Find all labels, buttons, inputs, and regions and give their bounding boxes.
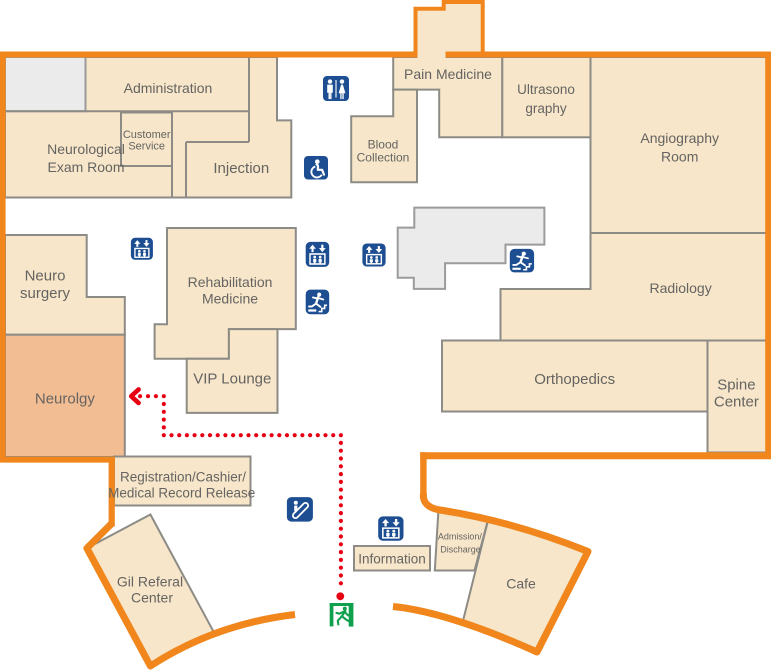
svg-text:Exam Room: Exam Room: [47, 159, 124, 175]
svg-text:Rehabilitation: Rehabilitation: [188, 274, 273, 290]
svg-text:Discharge: Discharge: [440, 545, 481, 555]
svg-text:Collection: Collection: [357, 151, 410, 165]
svg-text:Customer: Customer: [123, 129, 171, 141]
svg-text:Information: Information: [358, 552, 426, 567]
svg-text:Admission/: Admission/: [438, 532, 483, 542]
svg-text:Blood: Blood: [368, 138, 399, 152]
svg-text:Administration: Administration: [124, 80, 213, 96]
svg-text:Medicine: Medicine: [202, 291, 258, 307]
svg-text:Cafe: Cafe: [506, 576, 536, 592]
svg-text:Registration/Cashier/: Registration/Cashier/: [120, 470, 246, 485]
svg-text:Injection: Injection: [213, 160, 269, 177]
svg-text:Angiography: Angiography: [640, 130, 719, 146]
svg-text:Center: Center: [714, 394, 759, 411]
svg-text:Neurological: Neurological: [47, 141, 125, 157]
svg-text:Ultrasono: Ultrasono: [517, 82, 575, 97]
svg-text:Pain Medicine: Pain Medicine: [404, 66, 492, 82]
svg-text:Neurolgy: Neurolgy: [35, 391, 96, 408]
svg-text:Orthopedics: Orthopedics: [534, 371, 615, 388]
svg-text:Medical Record Release: Medical Record Release: [108, 486, 255, 501]
svg-text:Gil Referal: Gil Referal: [117, 574, 183, 590]
svg-text:Neuro: Neuro: [25, 268, 66, 285]
svg-text:Radiology: Radiology: [649, 280, 711, 296]
svg-text:surgery: surgery: [20, 285, 71, 302]
svg-text:VIP Lounge: VIP Lounge: [193, 371, 271, 388]
svg-text:graphy: graphy: [525, 101, 567, 116]
svg-text:Room: Room: [661, 149, 698, 165]
svg-text:Spine: Spine: [717, 377, 755, 394]
svg-text:Center: Center: [131, 590, 173, 606]
svg-text:Service: Service: [128, 141, 165, 153]
